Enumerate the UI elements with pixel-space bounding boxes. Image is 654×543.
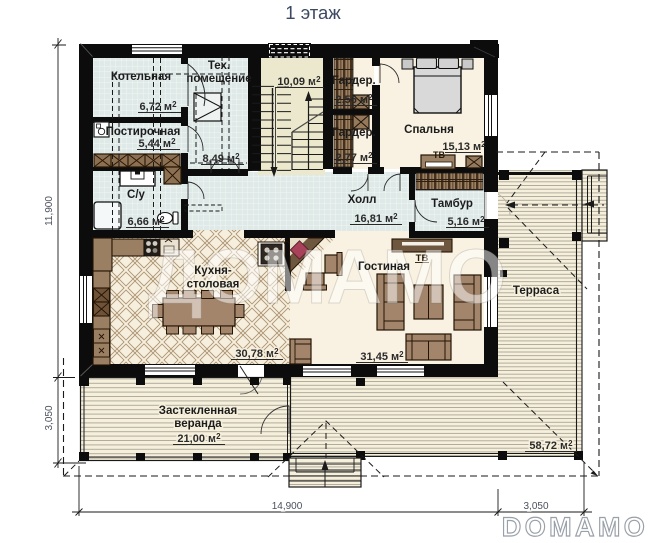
svg-text:30,78 м2: 30,78 м2 [235,347,279,360]
svg-text:столовая: столовая [187,279,240,291]
svg-text:ДОМАМО: ДОМАМО [148,234,507,320]
svg-text:помещение: помещение [186,73,251,85]
svg-text:15,13 м2: 15,13 м2 [442,140,486,153]
svg-text:Холл: Холл [348,194,377,206]
svg-text:С/у: С/у [127,189,146,201]
svg-text:веранда: веранда [174,418,222,430]
svg-text:3,050: 3,050 [44,405,55,430]
svg-text:Кухня-: Кухня- [194,265,232,277]
svg-text:Спальня: Спальня [404,124,454,136]
svg-text:21,00 м2: 21,00 м2 [177,432,221,445]
svg-text:8,49 м2: 8,49 м2 [202,152,240,165]
svg-text:Гостиная: Гостиная [358,261,410,273]
svg-text:Постирочная: Постирочная [106,126,181,138]
svg-text:DOMAMO: DOMAMO [502,512,648,542]
svg-text:10,09 м2: 10,09 м2 [277,75,321,88]
svg-text:Тамбур: Тамбур [431,198,473,210]
svg-text:Котельная: Котельная [111,71,171,83]
svg-text:2,77 м2: 2,77 м2 [335,151,373,164]
svg-text:6,66 м2: 6,66 м2 [127,215,165,228]
svg-text:58,72 м2: 58,72 м2 [529,439,573,452]
svg-text:5,16 м2: 5,16 м2 [447,215,485,228]
svg-text:5,44 м2: 5,44 м2 [138,137,176,150]
svg-text:Застекленная: Застекленная [159,405,237,417]
svg-text:3,050: 3,050 [523,501,548,512]
svg-text:2,56 м2: 2,56 м2 [335,93,373,106]
svg-text:Терраса: Терраса [513,285,560,297]
svg-text:14,900: 14,900 [272,501,303,512]
svg-text:16,81 м2: 16,81 м2 [354,212,398,225]
svg-text:31,45 м2: 31,45 м2 [360,350,404,363]
svg-text:Гардер.: Гардер. [332,127,375,139]
svg-text:6,72 м2: 6,72 м2 [139,100,177,113]
svg-text:Гардер.: Гардер. [332,75,375,87]
svg-text:Тех.: Тех. [208,60,230,72]
svg-text:11,900: 11,900 [44,196,55,226]
svg-text:1 этаж: 1 этаж [285,2,341,23]
